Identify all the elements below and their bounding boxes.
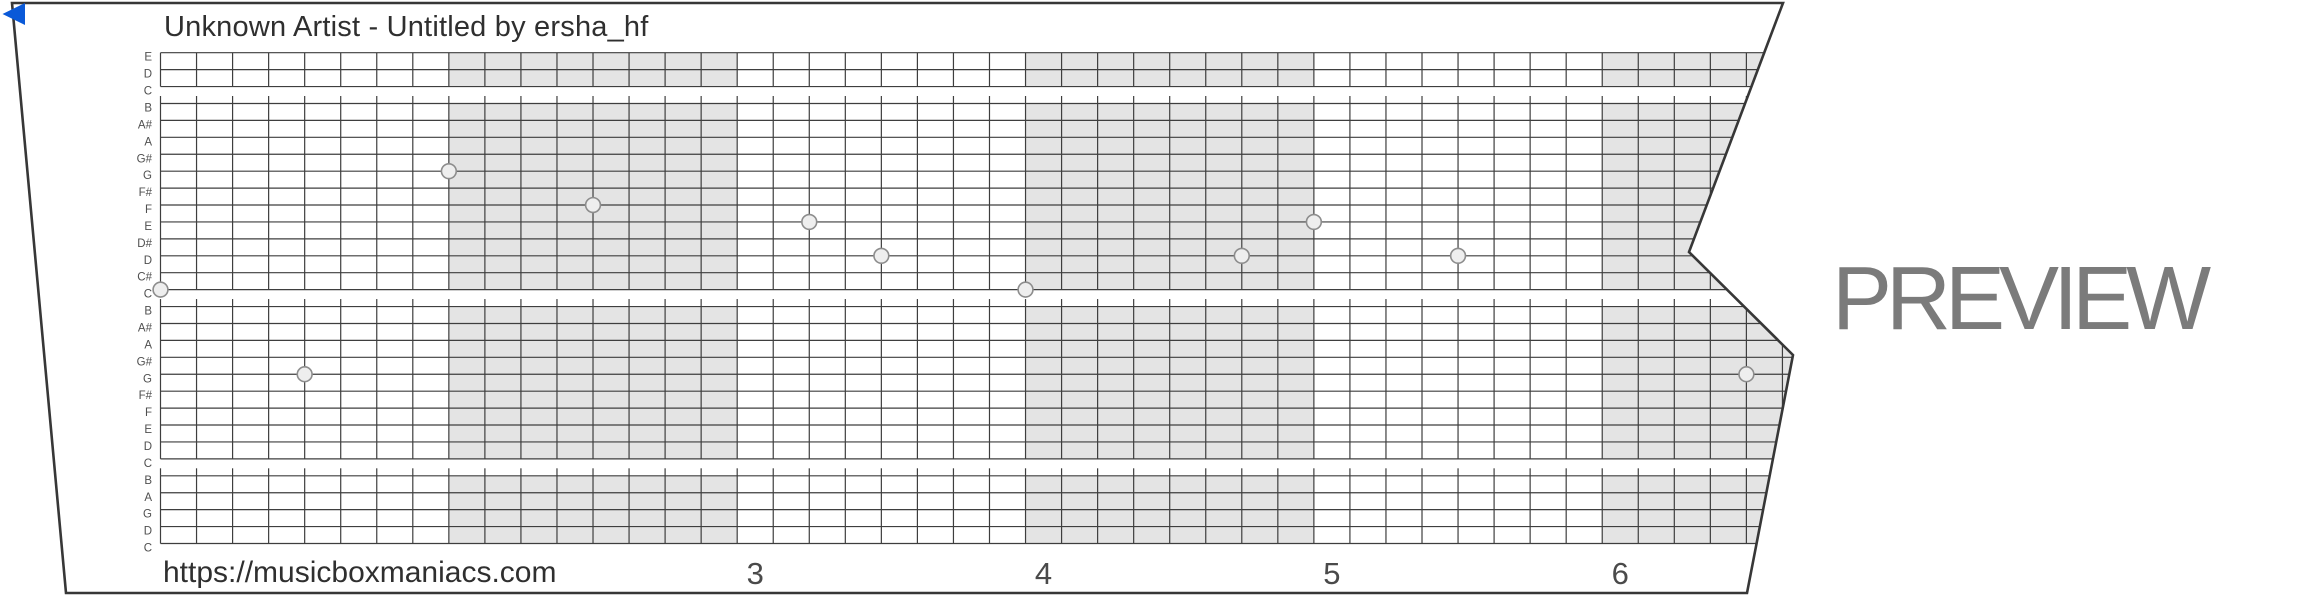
note-label: E	[144, 52, 152, 64]
back-arrow-icon[interactable]	[0, 0, 28, 26]
note-label: C	[144, 543, 152, 555]
note-label: G	[143, 509, 152, 521]
note-dot	[1306, 215, 1321, 230]
note-dot	[874, 248, 889, 263]
note-label: E	[144, 221, 152, 233]
note-label: F	[145, 204, 152, 216]
note-label: G#	[137, 153, 153, 165]
note-label: A	[144, 136, 152, 148]
note-label: A#	[138, 323, 153, 335]
note-label: F	[145, 407, 152, 419]
note-label: C	[144, 458, 152, 470]
note-dot	[1739, 367, 1754, 382]
note-label: A#	[138, 119, 153, 131]
back-arrow-triangle[interactable]	[3, 3, 26, 25]
measure-number: 3	[747, 556, 764, 591]
note-dot	[153, 282, 168, 297]
site-url: https://musicboxmaniacs.com	[163, 556, 556, 590]
note-label: D	[144, 441, 152, 453]
note-label: B	[144, 103, 152, 115]
note-label: A	[144, 339, 152, 351]
measure-number: 4	[1035, 556, 1052, 591]
note-label: B	[144, 306, 152, 318]
note-label: G	[143, 373, 152, 385]
measure-number: 6	[1612, 556, 1629, 591]
note-dot	[441, 164, 456, 179]
preview-watermark: PREVIEW	[1832, 248, 2205, 351]
note-label: D	[144, 526, 152, 538]
note-dot	[802, 215, 817, 230]
note-label: C#	[137, 272, 152, 284]
note-label: G#	[137, 356, 153, 368]
note-dot	[1451, 248, 1466, 263]
note-label: G	[143, 170, 152, 182]
note-label: A	[144, 492, 152, 504]
strip-paper	[12, 3, 1793, 593]
note-label: F#	[139, 390, 153, 402]
note-label: B	[144, 475, 152, 487]
note-dot	[297, 367, 312, 382]
note-label: D#	[137, 238, 152, 250]
note-label: F#	[139, 187, 153, 199]
page-title: Unknown Artist - Untitled by ersha_hf	[164, 11, 649, 44]
note-label: D	[144, 255, 152, 267]
note-dot	[1234, 248, 1249, 263]
note-label: C	[144, 86, 152, 98]
note-dot	[1018, 282, 1033, 297]
music-strip-preview-page: EDCBA#AG#GF#FED#DC#CBA#AG#GF#FEDCBAGDC34…	[0, 0, 2310, 597]
note-dot	[586, 198, 601, 213]
note-label: D	[144, 69, 152, 81]
note-label: C	[144, 289, 152, 301]
note-label: E	[144, 424, 152, 436]
measure-number: 5	[1323, 556, 1340, 591]
